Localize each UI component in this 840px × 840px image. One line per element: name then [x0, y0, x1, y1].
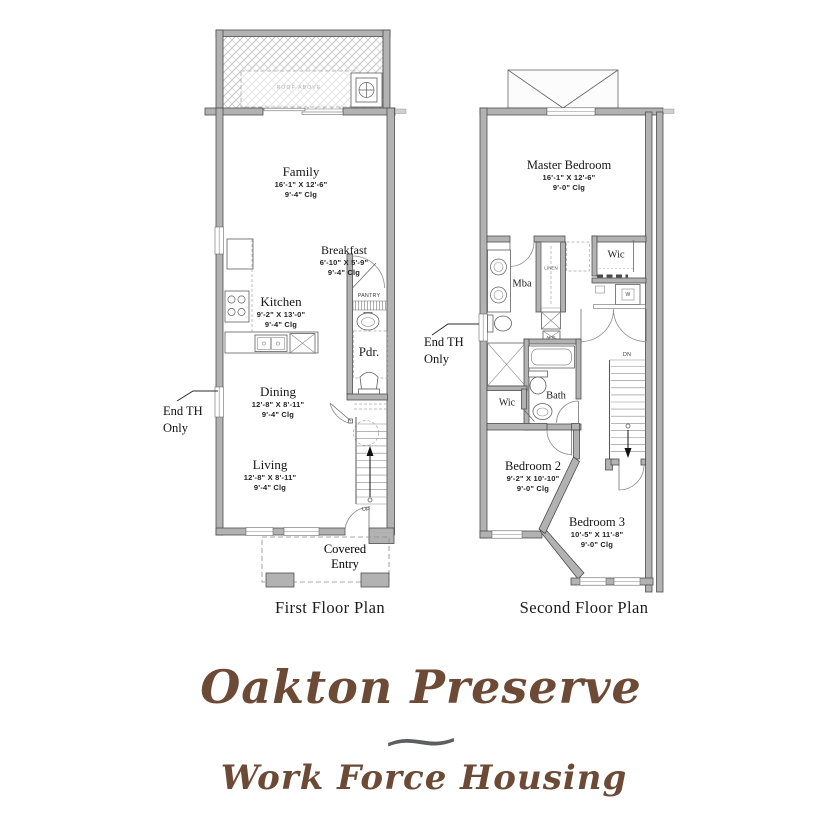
bedroom2-door — [547, 430, 572, 456]
bath-toilet — [529, 371, 548, 394]
powder-room-sink — [357, 313, 379, 331]
stairs-up-label: UP — [362, 507, 370, 513]
stairs-down-label: DN — [623, 352, 631, 358]
wic-left-label: Wic — [499, 398, 515, 409]
bathtub — [529, 346, 575, 368]
kitchen-sink — [255, 335, 287, 352]
master-toilet — [488, 315, 512, 332]
master-bath-door — [510, 242, 534, 267]
dishwasher — [290, 334, 315, 354]
shower — [488, 343, 526, 386]
first-floor-caption: First Floor Plan — [275, 598, 385, 618]
second-floor-plan-geometry — [432, 70, 674, 592]
range — [225, 291, 249, 322]
room-label-master-bedroom: Master Bedroom 16'-1" X 12'-6" 9'-0" Clg — [527, 158, 611, 193]
room-label-bedroom2: Bedroom 2 9'-2" X 10'-10" 9'-0" Clg — [505, 459, 561, 494]
linen-label: LINEN — [544, 266, 558, 271]
room-label-dining: Dining 12'-8" X 8'-11" 9'-4" Clg — [252, 384, 304, 420]
grill-fixture — [351, 73, 382, 107]
refrigerator — [227, 239, 253, 269]
laundry-doors — [581, 309, 646, 342]
community-title: Oakton Preserve — [200, 660, 642, 714]
master-bath-label: Mba — [512, 279, 531, 290]
bath-sink — [533, 404, 552, 420]
appl-label: APPL — [546, 334, 556, 339]
floor-plan-sheet: ROOF ABOVE Family 16'-1" X 12'-6" 9'-4" … — [0, 0, 840, 840]
community-subtitle: Work Force Housing — [221, 758, 628, 798]
double-vanity — [488, 250, 511, 312]
bedroom3-door — [619, 465, 644, 490]
wic-right-label: Wic — [607, 250, 624, 261]
room-label-kitchen: Kitchen 9'-2" X 13'-0" 9'-4" Clg — [257, 294, 306, 330]
linen-closet — [536, 242, 566, 312]
hall-door — [330, 403, 353, 424]
stairs-down — [610, 360, 646, 459]
room-label-living: Living 12'-8" X 8'-11" 9'-4" Clg — [244, 457, 296, 493]
roof-below-symbol — [508, 70, 618, 108]
pantry-label: PANTRY — [358, 293, 381, 299]
pantry-shelves — [353, 301, 387, 310]
room-label-bedroom3: Bedroom 3 10'-5" X 11'-8" 9'-0" Clg — [569, 515, 625, 550]
washer-label: W — [626, 292, 631, 298]
room-label-breakfast: Breakfast 6'-10" X 5'-9" 9'-4" Clg — [320, 243, 369, 278]
powder-room-toilet — [359, 372, 380, 395]
powder-room-label: Pdr. — [359, 344, 380, 360]
bath-label: Bath — [546, 391, 566, 402]
bath-door — [557, 401, 579, 423]
stairs-up — [356, 417, 387, 504]
roof-above-note: ROOF ABOVE — [277, 85, 322, 91]
end-th-note-first: End TH Only — [163, 403, 203, 437]
covered-entry-label: Covered Entry — [324, 542, 366, 572]
end-th-note-second: End TH Only — [424, 334, 464, 368]
washer — [596, 285, 641, 305]
second-floor-caption: Second Floor Plan — [520, 598, 649, 618]
room-label-family: Family 16'-1" X 12'-6" 9'-4" Clg — [275, 164, 328, 200]
